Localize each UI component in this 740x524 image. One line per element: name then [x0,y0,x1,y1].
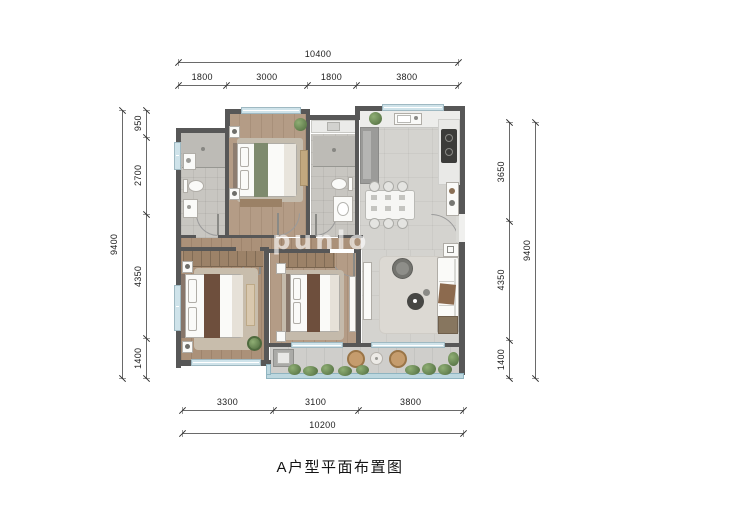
lamp-icon [185,344,190,349]
pillow-icon [293,278,301,300]
sliding-door [371,342,445,348]
placemat [371,195,377,200]
chair-icon [397,218,408,229]
pillow-icon [293,302,301,324]
entry-opening [459,214,465,242]
dim-label: 3100 [273,397,358,407]
tv-console [363,262,372,320]
side-table-icon [423,289,430,296]
chair-icon [383,181,394,192]
plan-title: A户型平面布置图 [250,456,430,477]
wall [218,235,276,238]
dim-label: 3800 [358,397,463,407]
faucet-icon [414,116,418,120]
sofa-throw [438,283,456,305]
wall [445,343,460,347]
chair-icon [383,218,394,229]
plant-icon [294,118,307,131]
nightstand-icon [276,331,286,342]
dim-label: 9400 [521,122,533,378]
placemat [371,206,377,211]
burner-icon [445,148,453,156]
dim-label: 1400 [132,338,144,378]
sliding-door [291,342,343,348]
dim-label: 4350 [495,221,507,339]
pillow-icon [188,279,197,303]
nightstand-icon [276,263,286,274]
bed-foot-blanket [330,275,339,331]
dresser-icon [349,276,356,332]
door-leaf [217,214,219,235]
bench-icon [240,199,282,207]
plant-icon [369,112,382,125]
bench-icon [246,284,255,326]
sink-basin-icon [337,202,349,216]
dim-label: 950 [132,110,144,137]
dim-label: 2700 [132,137,144,214]
dim-label: 3650 [495,122,507,221]
shower-drain-icon [201,147,205,151]
window [241,107,301,114]
balcony-chair-icon [389,350,407,368]
dim-label: 1800 [178,72,226,82]
greenery-icon [405,365,420,375]
bench-icon [300,150,308,186]
toilet-icon [188,180,204,192]
wall [269,343,291,347]
burner-icon [445,134,453,142]
wall [355,111,359,235]
placemat [399,206,405,211]
lamp-icon [232,129,237,134]
greenery-icon [438,364,452,375]
wall [264,247,269,365]
dim-label: 10200 [182,420,463,430]
placemat [385,206,391,211]
wall [459,345,465,375]
dim-label: 3800 [356,72,458,82]
bed-foot-blanket [232,275,243,337]
decor-icon [449,188,455,194]
bed-runner [254,143,268,197]
faucet-icon [187,205,191,209]
wardrobe-icon [183,251,263,267]
lamp-icon [185,264,190,269]
faucet-icon [186,158,191,163]
table-dot [375,357,378,360]
toilet-tank-icon [348,177,353,191]
window [174,285,181,331]
dim-label: 1400 [495,340,507,378]
wall [356,249,361,345]
greenery-icon [338,366,352,376]
dim-label: 3300 [182,397,273,407]
sofa-cushion-line [439,305,454,306]
balcony-railing [266,364,271,375]
placemat [385,195,391,200]
chair-icon [369,218,380,229]
wall [343,343,371,347]
door-leaf [456,214,459,242]
greenery-icon [356,365,369,375]
coffee-table-dot [413,299,417,303]
wall [459,242,465,346]
dim-label: 3000 [226,72,307,82]
cabinet-glyph [447,246,454,253]
plant-icon [247,336,262,351]
pillow-icon [240,170,249,190]
placemat [399,195,405,200]
toilet-icon [331,178,347,190]
washer-door-icon [277,352,290,364]
bath-tray-icon [183,199,198,218]
window [174,142,181,170]
wall [306,115,359,120]
chair-icon [369,181,380,192]
door-leaf [353,253,355,276]
window [191,359,261,366]
bed-runner [307,274,320,332]
dim-label: 9400 [108,110,120,378]
floorplan-sheet: 10400 1800300018003800 9400 950270043501… [0,0,740,524]
side-cabinet [438,316,458,334]
dim-label: 1800 [307,72,355,82]
decor-icon [449,200,455,206]
ac-unit-icon [327,122,340,131]
wall [225,128,229,235]
bed-runner [204,274,220,338]
dim-label: 4350 [132,214,144,338]
sofa-cushion-line [439,281,454,282]
brand-watermark: punlo [272,226,369,256]
greenery-icon [321,364,334,375]
window [382,104,444,111]
kitchen-sink-basin [397,115,411,123]
bed-foot-blanket [284,144,296,196]
dim-label: 10400 [178,49,458,59]
greenery-icon [288,364,301,375]
pillow-icon [188,307,197,331]
wall [176,235,196,238]
greenery-icon [422,363,436,375]
chair-icon [397,181,408,192]
lamp-icon [232,191,237,196]
shower-drain-icon [332,148,336,152]
greenery-icon [303,366,318,376]
pillow-icon [240,147,249,167]
fridge-highlight [363,131,371,179]
greenery-icon [448,352,459,366]
armchair-cushion [396,262,409,275]
